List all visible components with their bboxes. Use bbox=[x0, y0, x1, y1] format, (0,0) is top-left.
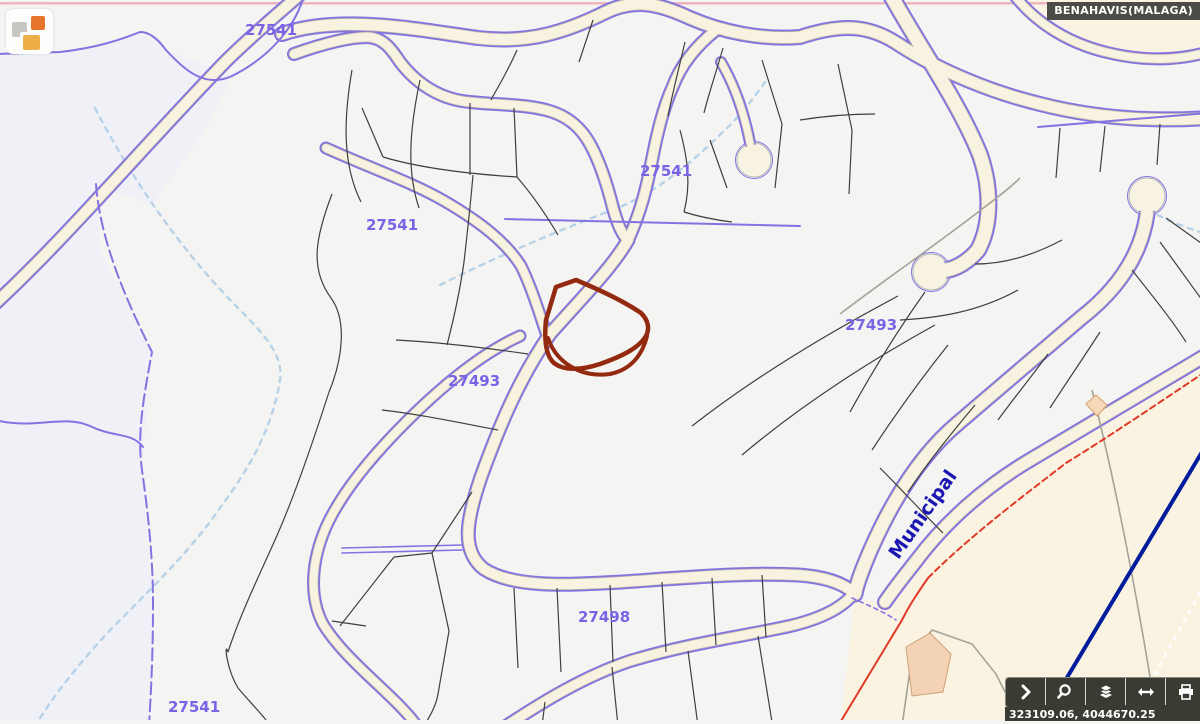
layers-icon bbox=[1096, 683, 1116, 701]
app-logo bbox=[6, 9, 53, 54]
expand-toolbar-button[interactable] bbox=[1006, 678, 1045, 705]
layers-button[interactable] bbox=[1085, 678, 1125, 705]
parcel-label: 27541 bbox=[168, 698, 220, 716]
parcel-label: 27498 bbox=[578, 608, 630, 626]
municipality-badge: BENAHAVIS(MALAGA) bbox=[1047, 2, 1200, 20]
map-canvas[interactable]: 27541 27541 27541 27493 27493 27498 2754… bbox=[0, 0, 1200, 720]
parcel-label: 27541 bbox=[245, 21, 297, 39]
parcel-label: 27493 bbox=[845, 316, 897, 334]
measure-pan-button[interactable] bbox=[1125, 678, 1165, 705]
logo-amber-square-icon bbox=[23, 35, 40, 50]
printer-icon bbox=[1177, 684, 1195, 700]
parcel-label: 27493 bbox=[448, 372, 500, 390]
horizontal-arrows-icon bbox=[1136, 685, 1156, 699]
coordinate-readout: 323109.06, 4044670.25 bbox=[1005, 707, 1200, 721]
logo-orange-square-icon bbox=[31, 16, 45, 30]
print-button[interactable] bbox=[1165, 678, 1200, 705]
magnifier-icon bbox=[1057, 683, 1075, 701]
parcel-label: 27541 bbox=[366, 216, 418, 234]
zoom-search-button[interactable] bbox=[1045, 678, 1085, 705]
map-toolbar bbox=[1005, 677, 1200, 708]
chevron-right-icon bbox=[1018, 684, 1034, 700]
parcel-label: 27541 bbox=[640, 162, 692, 180]
